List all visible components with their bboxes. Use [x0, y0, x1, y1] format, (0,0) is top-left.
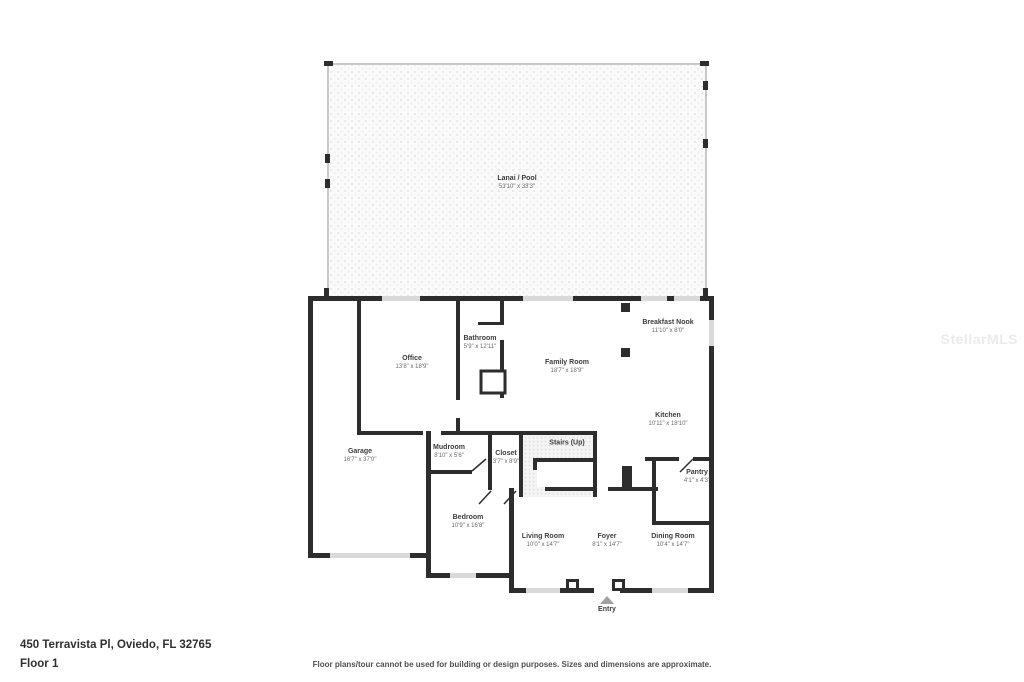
- address-text: 450 Terravista Pl, Oviedo, FL 32765: [20, 639, 211, 651]
- room-label-stairs: Stairs (Up): [549, 440, 584, 449]
- entry-arrow-icon: [600, 596, 614, 604]
- room-label-family-room: Family Room 18'7" x 18'9": [545, 359, 589, 375]
- room-label-pantry: Pantry 4'1" x 4'3": [684, 469, 710, 485]
- entry-label: Entry: [598, 606, 616, 613]
- room-label-closet: Closet 3'7" x 8'9": [493, 450, 519, 466]
- room-label-foyer: Foyer 8'1" x 14'7": [592, 533, 622, 549]
- room-label-living-room: Living Room 10'0" x 14'7": [522, 533, 564, 549]
- room-label-bedroom: Bedroom 10'9" x 16'8": [452, 514, 485, 530]
- room-label-bathroom: Bathroom 5'9" x 12'11": [463, 335, 496, 351]
- room-label-kitchen: Kitchen 10'11" x 18'10": [648, 412, 687, 428]
- room-label-dining-room: Dining Room 10'4" x 14'7": [651, 533, 695, 549]
- room-label-lanai-pool: Lanai / Pool 53'10" x 33'3": [497, 175, 536, 191]
- floorplan-drawing: [0, 0, 1024, 682]
- room-label-breakfast-nook: Breakfast Nook 11'10" x 8'0": [642, 319, 693, 335]
- room-label-mudroom: Mudroom 8'10" x 5'6": [433, 444, 465, 460]
- watermark: StellarMLS: [941, 331, 1018, 347]
- room-label-garage: Garage 16'7" x 37'0": [344, 448, 377, 464]
- disclaimer-text: Floor plans/tour cannot be used for buil…: [0, 660, 1024, 669]
- room-label-office: Office 13'8" x 18'9": [396, 355, 429, 371]
- floorplan-canvas: StellarMLS Lanai / Pool 53'10" x 33'3" O…: [0, 0, 1024, 682]
- water-closet-outline: [481, 371, 505, 393]
